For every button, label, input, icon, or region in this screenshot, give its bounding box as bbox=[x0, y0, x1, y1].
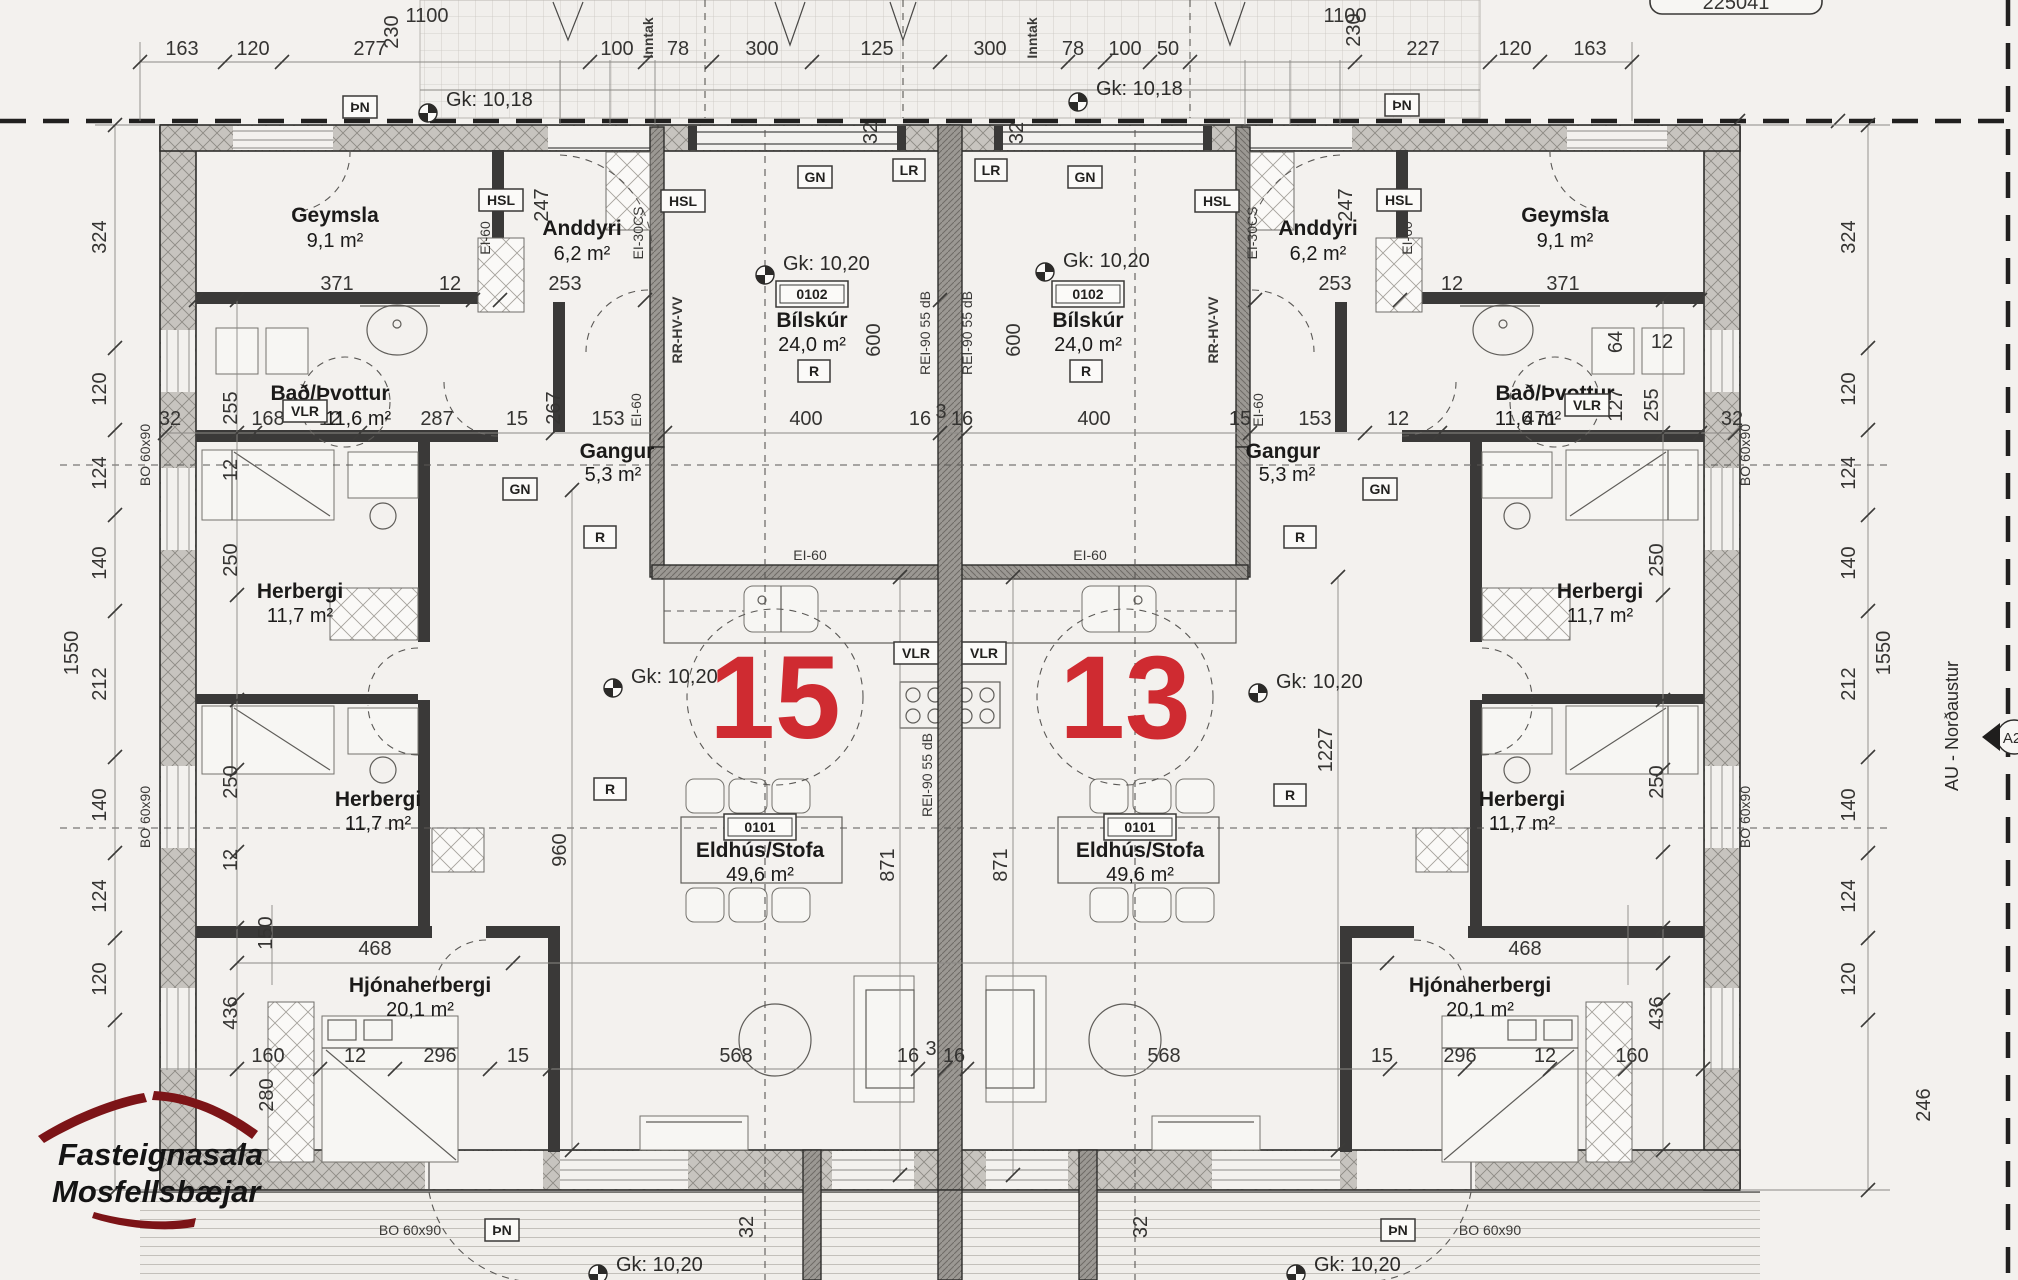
dim-label: 78 bbox=[1062, 38, 1084, 60]
lr-box: LR bbox=[982, 162, 1001, 178]
dim-label: 600 bbox=[863, 323, 885, 356]
compass-annotation: AU - Norðaustur A2 bbox=[1942, 661, 2018, 791]
vlr-box: VLR bbox=[970, 645, 998, 661]
room-name-herbergi1-left: Herbergi bbox=[257, 580, 343, 603]
vlr-box: VLR bbox=[902, 645, 930, 661]
dim-label: 163 bbox=[165, 38, 198, 60]
dim-label: 212 bbox=[1838, 667, 1860, 700]
lr-box: LR bbox=[900, 162, 919, 178]
dim-label: 227 bbox=[1406, 38, 1439, 60]
dim-label: 100 bbox=[1108, 38, 1141, 60]
dim-label: 64 bbox=[1605, 331, 1627, 353]
dim-label: 16 bbox=[951, 408, 973, 430]
bo-window-label: BO 60x90 bbox=[1737, 786, 1753, 848]
gk-level-label: Gk: 10,20 bbox=[616, 1254, 703, 1276]
dim-label: 1100 bbox=[405, 5, 448, 27]
ei60-label: EI-60 bbox=[793, 547, 827, 563]
ei60-label: EI-60 bbox=[477, 221, 493, 255]
dim-label: 12 bbox=[1534, 1045, 1556, 1067]
dim-label: 124 bbox=[1838, 456, 1860, 489]
dim-label: 3 bbox=[925, 1038, 936, 1060]
room-area-geymsla-right: 9,1 m² bbox=[1537, 230, 1594, 252]
dim-label: 124 bbox=[89, 456, 111, 489]
dim-label: 250 bbox=[1646, 543, 1668, 576]
dim-label: 153 bbox=[1298, 408, 1331, 430]
hsl-box: HSL bbox=[487, 192, 515, 208]
dim-label: 12 bbox=[1387, 408, 1409, 430]
room-area-hjona-right: 20,1 m² bbox=[1446, 999, 1514, 1021]
logo-line2: Mosfellsbæjar bbox=[52, 1174, 262, 1209]
dim-label: 15 bbox=[1371, 1045, 1393, 1067]
room-area-herbergi1-left: 11,7 m² bbox=[267, 605, 334, 627]
room-area-anddyri-right: 6,2 m² bbox=[1290, 243, 1347, 265]
dim-label: 160 bbox=[1615, 1045, 1648, 1067]
dim-label: 300 bbox=[745, 38, 778, 60]
room-area-eldhus-right: 49,6 m² bbox=[1106, 864, 1174, 886]
room-name-eldhus-left: Eldhús/Stofa bbox=[696, 839, 825, 862]
room-area-herbergi2-right: 11,7 m² bbox=[1489, 813, 1556, 835]
dim-label: 1550 bbox=[61, 631, 83, 676]
rei90-label: REI-90 55 dB bbox=[959, 291, 975, 375]
dim-label: 246 bbox=[1913, 1088, 1935, 1121]
rei90-label: REI-90 55 dB bbox=[917, 291, 933, 375]
dim-label: 78 bbox=[667, 38, 689, 60]
dim-label: 250 bbox=[1646, 765, 1668, 798]
room-name-anddyri-right: Anddyri bbox=[1278, 217, 1357, 240]
dim-label: 296 bbox=[423, 1045, 456, 1067]
gk-level-label: Gk: 10,18 bbox=[446, 89, 533, 111]
room-area-hjona-left: 20,1 m² bbox=[386, 999, 454, 1021]
dim-label: 100 bbox=[600, 38, 633, 60]
gk-level-label: Gk: 10,18 bbox=[1096, 78, 1183, 100]
dim-label: 124 bbox=[89, 879, 111, 912]
hsl-box: HSL bbox=[669, 193, 697, 209]
room-area-gangur-left: 5,3 m² bbox=[585, 464, 642, 486]
dim-label: 296 bbox=[1443, 1045, 1476, 1067]
dim-label: 12 bbox=[439, 273, 461, 295]
dim-label: 15 bbox=[507, 1045, 529, 1067]
dim-label: 120 bbox=[89, 962, 111, 995]
dim-label: 324 bbox=[1838, 220, 1860, 253]
room-area-bilskur-left: 24,0 m² bbox=[778, 334, 846, 356]
pn-box: ÞN bbox=[492, 1222, 511, 1238]
ei30cs-label: EI-30CS bbox=[630, 207, 646, 260]
gk-level-label: Gk: 10,20 bbox=[1063, 250, 1150, 272]
dim-label: 250 bbox=[220, 765, 242, 798]
dim-label: 253 bbox=[548, 273, 581, 295]
dim-label: 468 bbox=[358, 938, 391, 960]
dim-label: 32 bbox=[1130, 1216, 1152, 1238]
dim-label: 255 bbox=[1641, 388, 1663, 421]
dim-label: 160 bbox=[251, 1045, 284, 1067]
dim-label: 230 bbox=[1343, 13, 1365, 46]
dim-label: 468 bbox=[1508, 938, 1541, 960]
dim-label: 253 bbox=[1318, 273, 1351, 295]
r-box: R bbox=[1081, 363, 1091, 379]
room-area-gangur-right: 5,3 m² bbox=[1259, 464, 1316, 486]
sheet-number-box: 225041 bbox=[1650, 0, 1822, 14]
dim-label: 250 bbox=[220, 543, 242, 576]
ei30cs-label: EI-30CS bbox=[1244, 207, 1260, 260]
r-box: R bbox=[1295, 529, 1305, 545]
room-name-hjona-left: Hjónaherbergi bbox=[349, 974, 491, 997]
dim-label: 1227 bbox=[1315, 728, 1337, 773]
ei60-label: EI-60 bbox=[1250, 393, 1266, 427]
dim-label: 120 bbox=[1838, 372, 1860, 405]
dim-label: 436 bbox=[1646, 996, 1668, 1029]
dim-label: 400 bbox=[1077, 408, 1110, 430]
r-box: R bbox=[1285, 787, 1295, 803]
gk-level-label: Gk: 10,20 bbox=[783, 253, 870, 275]
dim-label: 140 bbox=[89, 788, 111, 821]
pn-box: ÞN bbox=[1392, 97, 1411, 113]
room-name-bilskur-left: Bílskúr bbox=[776, 309, 847, 332]
r-box: R bbox=[595, 529, 605, 545]
section-marker-arrow bbox=[1982, 723, 2000, 751]
dim-label: 12 bbox=[344, 1045, 366, 1067]
ei60-label: EI-60 bbox=[1073, 547, 1107, 563]
dim-label: 324 bbox=[89, 220, 111, 253]
space-id-0101-right: 0101 bbox=[1124, 819, 1155, 835]
dim-label: 140 bbox=[89, 546, 111, 579]
room-name-hjona-right: Hjónaherbergi bbox=[1409, 974, 1551, 997]
room-area-anddyri-left: 6,2 m² bbox=[554, 243, 611, 265]
logo-line1: Fasteignasala bbox=[58, 1137, 263, 1172]
dim-label: 32 bbox=[159, 408, 181, 430]
dim-label: 12 bbox=[220, 849, 242, 871]
bo-window-label: BO 60x90 bbox=[1737, 424, 1753, 486]
dim-label: 50 bbox=[1157, 38, 1179, 60]
dim-label: 16 bbox=[897, 1045, 919, 1067]
dim-label: 1550 bbox=[1873, 631, 1895, 676]
room-name-anddyri-left: Anddyri bbox=[542, 217, 621, 240]
canopy-roof-grid bbox=[420, 0, 1480, 118]
sheet-number: 225041 bbox=[1703, 0, 1770, 14]
room-area-bilskur-right: 24,0 m² bbox=[1054, 334, 1122, 356]
dim-label: 287 bbox=[420, 408, 453, 430]
unit-number-15: 15 bbox=[709, 632, 840, 764]
dim-label: 120 bbox=[236, 38, 269, 60]
dim-label: 32 bbox=[860, 122, 882, 144]
dim-label: 230 bbox=[381, 15, 403, 48]
dim-label: 371 bbox=[320, 273, 353, 295]
dim-label: 120 bbox=[89, 372, 111, 405]
dim-label: 15 bbox=[506, 408, 528, 430]
room-area-herbergi2-left: 11,7 m² bbox=[345, 813, 412, 835]
ei60-label: EI-60 bbox=[1399, 221, 1415, 255]
dim-label: 267 bbox=[543, 391, 565, 424]
gn-box: GN bbox=[510, 481, 531, 497]
dim-label: 16 bbox=[943, 1045, 965, 1067]
dim-label: 153 bbox=[591, 408, 624, 430]
section-marker-label: A2 bbox=[2003, 730, 2018, 747]
agency-logo: Fasteignasala Mosfellsbæjar bbox=[38, 1091, 263, 1229]
pn-box: ÞN bbox=[1388, 1222, 1407, 1238]
rr-hv-vv-label: RR-HV-VV bbox=[1205, 296, 1221, 364]
room-area-eldhus-left: 49,6 m² bbox=[726, 864, 794, 886]
room-area-herbergi1-right: 11,7 m² bbox=[1567, 605, 1634, 627]
dim-label: 12 bbox=[1651, 331, 1673, 353]
gn-box: GN bbox=[1370, 481, 1391, 497]
dim-label: 140 bbox=[1838, 546, 1860, 579]
unit-number-13: 13 bbox=[1059, 632, 1190, 764]
pn-box: ÞN bbox=[350, 99, 369, 115]
room-name-eldhus-right: Eldhús/Stofa bbox=[1076, 839, 1205, 862]
dim-label: 600 bbox=[1003, 323, 1025, 356]
hsl-box: HSL bbox=[1385, 192, 1413, 208]
gk-level-label: Gk: 10,20 bbox=[1276, 671, 1363, 693]
hsl-box: HSL bbox=[1203, 193, 1231, 209]
ei60-label: EI-60 bbox=[628, 393, 644, 427]
dim-label: 32 bbox=[1006, 122, 1028, 144]
dim-label: 163 bbox=[1573, 38, 1606, 60]
room-name-geymsla-left: Geymsla bbox=[291, 204, 379, 227]
inntak-label: Inntak bbox=[1024, 17, 1040, 58]
gk-level-label: Gk: 10,20 bbox=[631, 666, 718, 688]
gn-box: GN bbox=[805, 169, 826, 185]
dim-label: 15 bbox=[1229, 408, 1251, 430]
rei90-label: REI-90 55 dB bbox=[919, 733, 935, 817]
bo-window-label: BO 60x90 bbox=[379, 1222, 441, 1238]
rr-hv-vv-label: RR-HV-VV bbox=[669, 296, 685, 364]
bo-window-label: BO 60x90 bbox=[137, 424, 153, 486]
bo-window-label: BO 60x90 bbox=[137, 786, 153, 848]
dim-label: 568 bbox=[719, 1045, 752, 1067]
room-name-bilskur-right: Bílskúr bbox=[1052, 309, 1123, 332]
room-name-geymsla-right: Geymsla bbox=[1521, 204, 1609, 227]
vlr-box: VLR bbox=[291, 403, 319, 419]
gk-level-label: Gk: 10,20 bbox=[1314, 1254, 1401, 1276]
room-area-bad-right: 11,6 m² bbox=[1495, 408, 1562, 430]
compass-direction-label: AU - Norðaustur bbox=[1942, 661, 1962, 791]
space-id-0102-left: 0102 bbox=[796, 286, 827, 302]
room-name-gangur-left: Gangur bbox=[580, 440, 655, 463]
dim-label: 280 bbox=[256, 1078, 278, 1111]
dim-label: 12 bbox=[220, 459, 242, 481]
dim-label: 16 bbox=[909, 408, 931, 430]
r-box: R bbox=[605, 781, 615, 797]
dim-label: 124 bbox=[1838, 879, 1860, 912]
space-id-0101-left: 0101 bbox=[744, 819, 775, 835]
dim-label: 568 bbox=[1147, 1045, 1180, 1067]
r-box: R bbox=[809, 363, 819, 379]
dim-label: 871 bbox=[877, 848, 899, 881]
dim-label: 32 bbox=[736, 1216, 758, 1238]
dim-label: 300 bbox=[973, 38, 1006, 60]
dim-label: 120 bbox=[1838, 962, 1860, 995]
logo-roof-left bbox=[38, 1093, 147, 1143]
vlr-box: VLR bbox=[1573, 397, 1601, 413]
room-name-herbergi2-right: Herbergi bbox=[1479, 788, 1565, 811]
bo-window-label: BO 60x90 bbox=[1459, 1222, 1521, 1238]
room-name-herbergi2-left: Herbergi bbox=[335, 788, 421, 811]
room-area-bad-left: 11,6 m² bbox=[325, 408, 392, 430]
space-id-0102-right: 0102 bbox=[1072, 286, 1103, 302]
dim-label: 436 bbox=[220, 996, 242, 1029]
dim-label: 371 bbox=[1546, 273, 1579, 295]
dim-label: 960 bbox=[549, 833, 571, 866]
gn-box: GN bbox=[1075, 169, 1096, 185]
dim-label: 255 bbox=[220, 391, 242, 424]
dim-label: 168 bbox=[251, 408, 284, 430]
inntak-label: Inntak bbox=[640, 17, 656, 58]
dim-label: 140 bbox=[1838, 788, 1860, 821]
room-name-gangur-right: Gangur bbox=[1246, 440, 1321, 463]
room-area-geymsla-left: 9,1 m² bbox=[307, 230, 364, 252]
dim-label: 150 bbox=[255, 916, 277, 949]
dim-label: 12 bbox=[1441, 273, 1463, 295]
dim-label: 3 bbox=[935, 401, 946, 423]
dim-label: 120 bbox=[1498, 38, 1531, 60]
floor-plan-drawing: 163 120 277 100 78 300 125 300 78 100 50… bbox=[0, 0, 2018, 1280]
dim-label: 125 bbox=[860, 38, 893, 60]
dim-label: 400 bbox=[789, 408, 822, 430]
floor-plan-sheet: 163 120 277 100 78 300 125 300 78 100 50… bbox=[0, 0, 2018, 1280]
dim-label: 212 bbox=[89, 667, 111, 700]
room-name-herbergi1-right: Herbergi bbox=[1557, 580, 1643, 603]
dim-label: 871 bbox=[990, 848, 1012, 881]
